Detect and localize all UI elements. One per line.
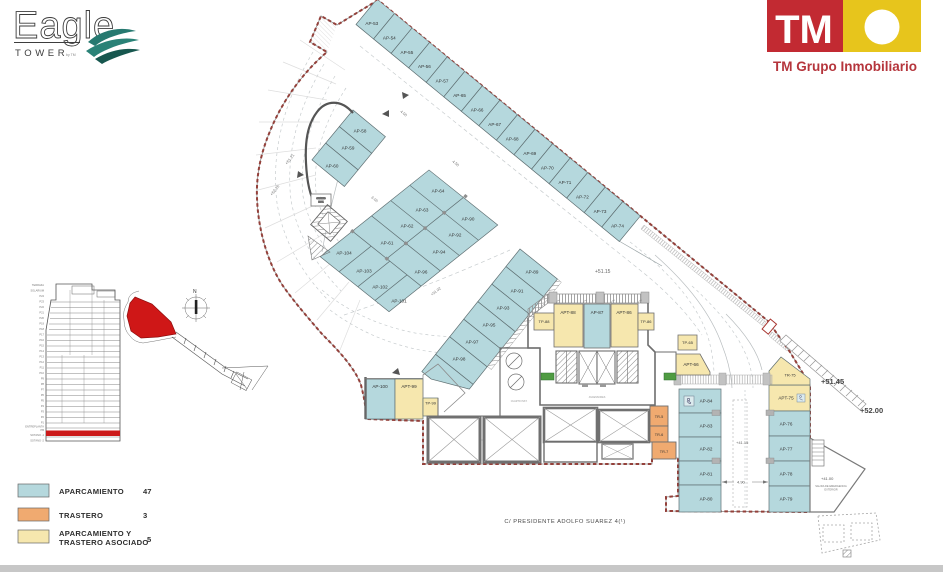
svg-text:TP-88: TP-88 bbox=[539, 319, 551, 324]
svg-text:AP-64: AP-64 bbox=[432, 189, 445, 194]
svg-text:APT-86: APT-86 bbox=[616, 310, 632, 315]
svg-text:AP-98: AP-98 bbox=[453, 357, 466, 362]
svg-text:SOLARIUM: SOLARIUM bbox=[30, 289, 44, 293]
svg-text:P4: P4 bbox=[41, 404, 45, 408]
svg-text:N: N bbox=[193, 289, 197, 295]
svg-text:APT-75: APT-75 bbox=[778, 396, 794, 401]
svg-text:AP-56: AP-56 bbox=[418, 64, 431, 69]
svg-text:P12: P12 bbox=[39, 360, 44, 364]
svg-text:SALIDA DE EMERGENCIA: SALIDA DE EMERGENCIA bbox=[815, 484, 847, 488]
svg-text:TERRAZA: TERRAZA bbox=[32, 283, 44, 287]
svg-text:AP-93: AP-93 bbox=[497, 306, 510, 311]
svg-text:TRASTERO ASOCIADO: TRASTERO ASOCIADO bbox=[59, 538, 149, 547]
svg-text:P9: P9 bbox=[41, 377, 45, 381]
svg-text:AP-71: AP-71 bbox=[559, 180, 572, 185]
svg-text:TP-99: TP-99 bbox=[425, 401, 437, 406]
svg-text:AP-63: AP-63 bbox=[416, 208, 429, 213]
svg-text:TR-7: TR-7 bbox=[660, 450, 668, 454]
svg-text:APT-88: APT-88 bbox=[560, 310, 576, 315]
svg-text:P24: P24 bbox=[39, 294, 44, 298]
svg-text:CUARTO: CUARTO bbox=[316, 197, 325, 200]
svg-text:P1: P1 bbox=[41, 421, 45, 425]
svg-text:P3: P3 bbox=[41, 410, 45, 414]
svg-text:P20: P20 bbox=[39, 316, 44, 320]
svg-text:AP-96: AP-96 bbox=[415, 270, 428, 275]
svg-text:SOTANO -1: SOTANO -1 bbox=[30, 433, 44, 437]
svg-text:AP-83: AP-83 bbox=[700, 424, 713, 429]
svg-text:AP-61: AP-61 bbox=[381, 241, 394, 246]
svg-text:AP-58: AP-58 bbox=[354, 129, 367, 134]
svg-text:AP-89: AP-89 bbox=[526, 270, 539, 275]
svg-text:AP-68: AP-68 bbox=[506, 137, 519, 142]
svg-text:EXTERIOR: EXTERIOR bbox=[824, 488, 837, 492]
svg-text:P2: P2 bbox=[41, 415, 45, 419]
svg-text:AP-62: AP-62 bbox=[401, 224, 414, 229]
svg-text:P6: P6 bbox=[41, 393, 45, 397]
svg-text:AP-57: AP-57 bbox=[436, 79, 449, 84]
svg-text:AP-73: AP-73 bbox=[594, 209, 607, 214]
svg-text:AP-70: AP-70 bbox=[541, 166, 554, 171]
svg-text:C/ PRESIDENTE ADOLFO SUAREZ 4(: C/ PRESIDENTE ADOLFO SUAREZ 4(¹) bbox=[504, 519, 625, 525]
svg-text:TM Grupo Inmobiliario: TM Grupo Inmobiliario bbox=[773, 59, 917, 74]
svg-text:AP-81: AP-81 bbox=[700, 472, 713, 477]
svg-text:+41.15: +41.15 bbox=[736, 440, 749, 445]
svg-text:AP-55: AP-55 bbox=[401, 50, 414, 55]
svg-text:+51.45: +51.45 bbox=[821, 377, 844, 386]
svg-text:AP-100: AP-100 bbox=[372, 384, 388, 389]
svg-text:AP-54: AP-54 bbox=[383, 35, 396, 40]
svg-text:AP-90: AP-90 bbox=[462, 217, 475, 222]
svg-text:CUARTO INST.: CUARTO INST. bbox=[511, 400, 528, 403]
svg-text:P18: P18 bbox=[39, 327, 44, 331]
svg-text:+51.15: +51.15 bbox=[595, 269, 611, 275]
svg-text:AP-53: AP-53 bbox=[365, 21, 378, 26]
svg-text:P13: P13 bbox=[39, 355, 44, 359]
svg-text:P22: P22 bbox=[39, 305, 44, 309]
svg-text:TR-6: TR-6 bbox=[655, 433, 663, 437]
svg-text:P5: P5 bbox=[41, 399, 45, 403]
svg-text:APT-66: APT-66 bbox=[683, 362, 699, 367]
svg-text:TOWER: TOWER bbox=[15, 48, 68, 59]
svg-text:P15: P15 bbox=[39, 344, 44, 348]
svg-text:AP-94: AP-94 bbox=[433, 250, 446, 255]
svg-text:AP-77: AP-77 bbox=[780, 447, 793, 452]
svg-text:AP-79: AP-79 bbox=[780, 497, 793, 502]
svg-text:AP-60: AP-60 bbox=[326, 164, 339, 169]
svg-text:AP-101: AP-101 bbox=[391, 299, 407, 304]
svg-text:TR-5: TR-5 bbox=[655, 415, 663, 419]
svg-text:AP-91: AP-91 bbox=[511, 289, 524, 294]
svg-text:P21: P21 bbox=[39, 311, 44, 315]
svg-text:INST.: INST. bbox=[318, 202, 324, 204]
svg-text:AP-59: AP-59 bbox=[342, 146, 355, 151]
svg-text:AP-103: AP-103 bbox=[356, 269, 372, 274]
svg-text:AP-102: AP-102 bbox=[372, 285, 388, 290]
svg-text:P19: P19 bbox=[39, 322, 44, 326]
svg-text:AP-65: AP-65 bbox=[453, 93, 466, 98]
svg-text:AP-76: AP-76 bbox=[780, 422, 793, 427]
svg-text:AP-80: AP-80 bbox=[700, 497, 713, 502]
svg-text:PB: PB bbox=[41, 428, 45, 432]
svg-text:P7: P7 bbox=[41, 388, 45, 392]
svg-text:AP-66: AP-66 bbox=[471, 108, 484, 113]
svg-text:APARCAMIENTO: APARCAMIENTO bbox=[59, 487, 124, 496]
svg-text:AP-74: AP-74 bbox=[611, 223, 624, 228]
svg-text:AP-104: AP-104 bbox=[336, 251, 352, 256]
svg-text:P17: P17 bbox=[39, 333, 44, 337]
svg-text:P16: P16 bbox=[39, 338, 44, 342]
svg-text:4.90: 4.90 bbox=[737, 480, 746, 485]
svg-text:AP-67: AP-67 bbox=[488, 122, 501, 127]
svg-text:47: 47 bbox=[143, 487, 151, 496]
svg-text:AP-72: AP-72 bbox=[576, 195, 589, 200]
svg-text:AP-78: AP-78 bbox=[780, 472, 793, 477]
svg-text:ENTREPLANTA: ENTREPLANTA bbox=[25, 425, 44, 429]
svg-text:SOTANO -2: SOTANO -2 bbox=[30, 439, 44, 443]
svg-text:3: 3 bbox=[143, 511, 147, 520]
svg-text:TM: TM bbox=[775, 8, 833, 52]
svg-text:AP-95: AP-95 bbox=[483, 323, 496, 328]
svg-text:P11: P11 bbox=[40, 366, 45, 370]
svg-text:AP-87: AP-87 bbox=[591, 310, 604, 315]
svg-text:P8: P8 bbox=[41, 382, 45, 386]
svg-text:AP-82: AP-82 bbox=[700, 447, 713, 452]
svg-text:TRASTERO: TRASTERO bbox=[59, 511, 103, 520]
svg-text:P14: P14 bbox=[39, 349, 44, 353]
svg-text:TR-75: TR-75 bbox=[784, 373, 796, 378]
svg-text:AP-92: AP-92 bbox=[449, 233, 462, 238]
svg-text:AP-69: AP-69 bbox=[523, 151, 536, 156]
svg-text:TP-86: TP-86 bbox=[641, 319, 653, 324]
svg-text:by TM: by TM bbox=[66, 53, 76, 57]
svg-text:APARCAMIENTO Y: APARCAMIENTO Y bbox=[59, 529, 132, 538]
svg-text:P10: P10 bbox=[39, 371, 44, 375]
svg-text:AP-97: AP-97 bbox=[466, 340, 479, 345]
svg-text:+52.00: +52.00 bbox=[860, 406, 883, 415]
svg-text:TP-65: TP-65 bbox=[682, 340, 694, 345]
svg-text:AP-84: AP-84 bbox=[700, 399, 713, 404]
svg-text:+41.00: +41.00 bbox=[821, 476, 834, 481]
svg-text:APT-99: APT-99 bbox=[401, 384, 417, 389]
svg-text:ASCENSORES: ASCENSORES bbox=[589, 396, 606, 399]
svg-text:P23: P23 bbox=[39, 300, 44, 304]
